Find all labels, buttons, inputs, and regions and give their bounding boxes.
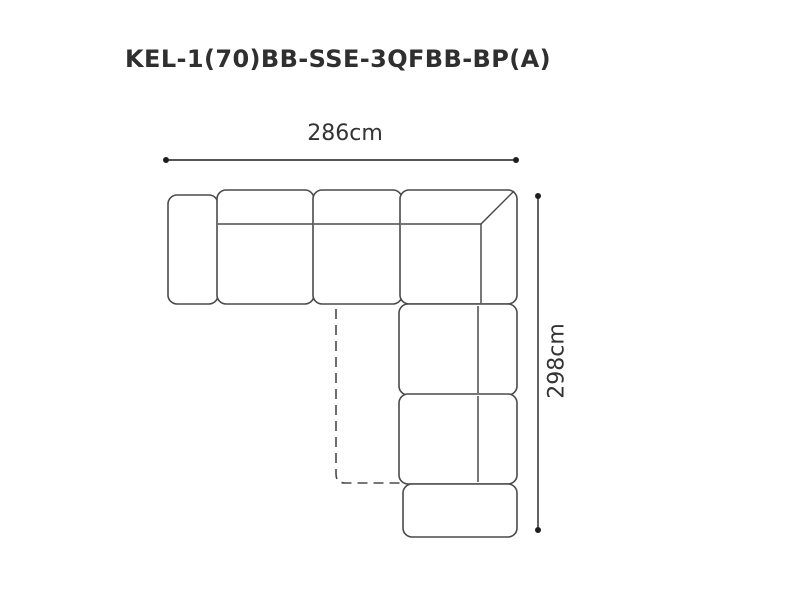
width-dimension-left-dot [163,157,169,163]
width-dimension-right-dot [513,157,519,163]
sofa-outline-drawing [0,0,800,600]
corner-module [400,190,517,304]
seat-module-1 [217,190,314,304]
bottom-armrest [403,484,517,537]
height-dimension-top-dot [535,193,541,199]
sofa-plan-diagram: KEL-1(70)BB-SSE-3QFBB-BP(A) 286cm 298cm [0,0,800,600]
height-dimension [535,193,541,533]
fold-out-dashed-outline [336,309,400,483]
left-armrest [168,195,218,304]
right-seat-module-1 [399,304,517,395]
height-dimension-bottom-dot [535,527,541,533]
right-seat-module-2 [399,394,517,484]
seat-module-2 [313,190,402,304]
width-dimension [163,157,519,163]
